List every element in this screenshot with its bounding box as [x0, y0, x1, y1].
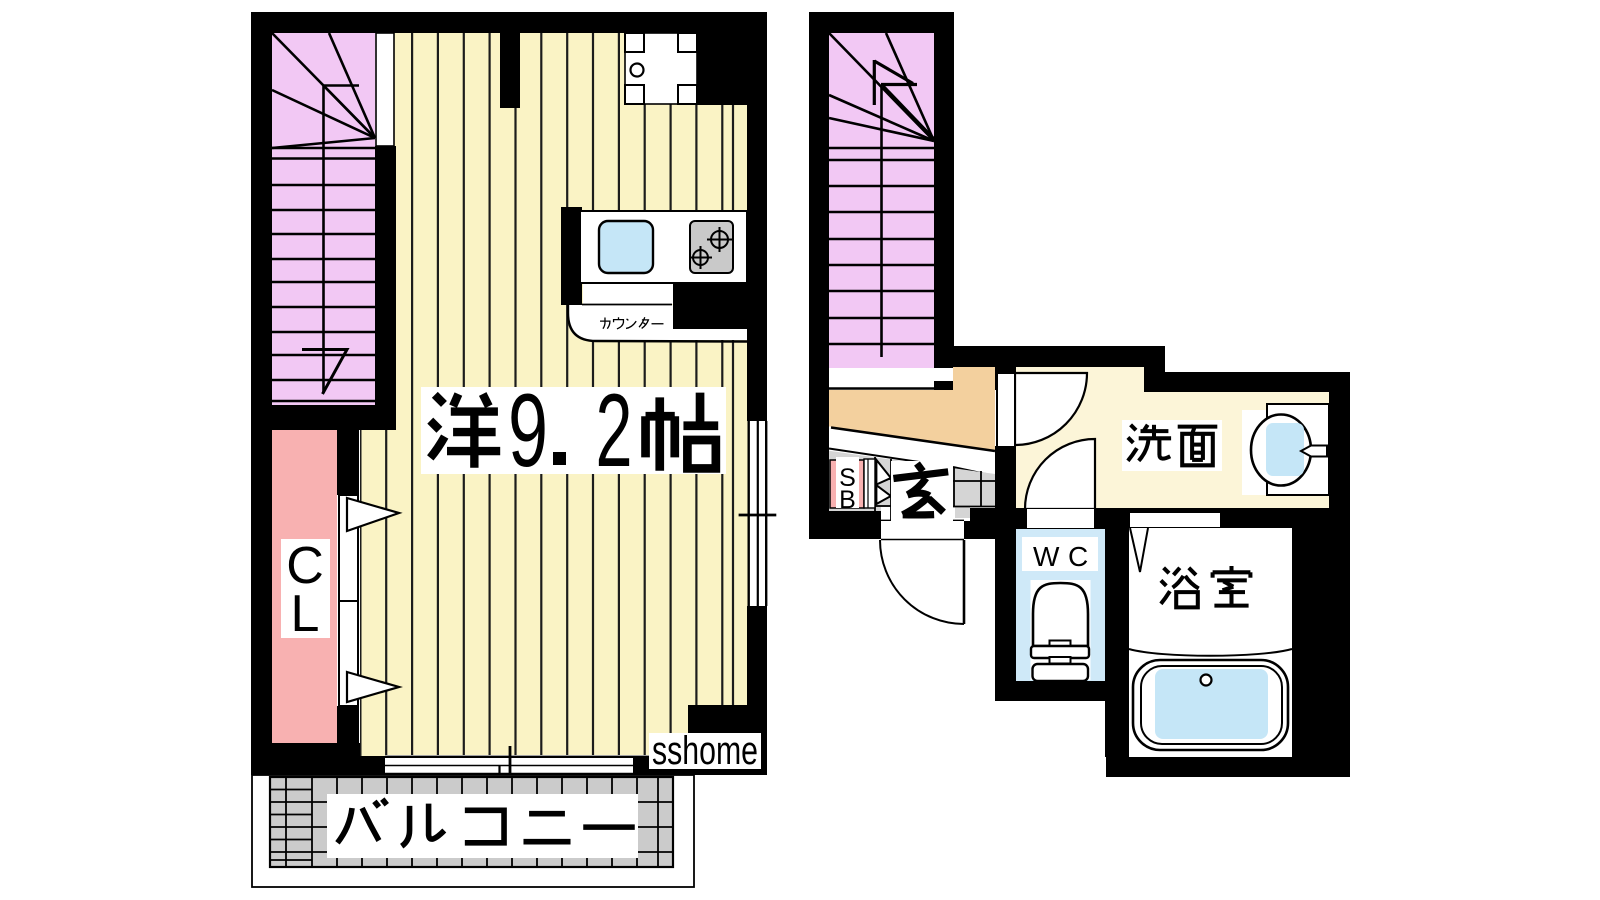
svg-text:2: 2: [596, 373, 633, 489]
svg-text:W: W: [1033, 541, 1060, 572]
svg-text:L: L: [291, 585, 320, 643]
svg-text:B: B: [839, 486, 856, 514]
svg-text:sshome: sshome: [652, 729, 758, 773]
svg-text:9: 9: [508, 373, 548, 489]
svg-text:C: C: [1068, 541, 1088, 572]
